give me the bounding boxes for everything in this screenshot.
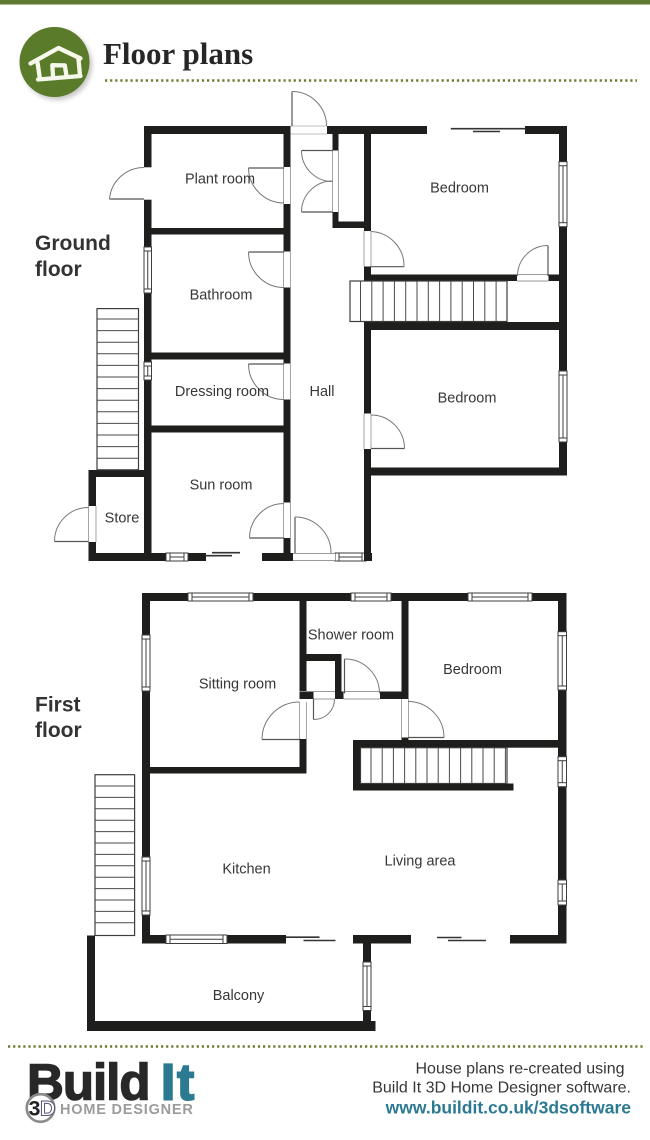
svg-text:Balcony: Balcony	[213, 988, 265, 1004]
svg-text:Build It 3D Home Designer soft: Build It 3D Home Designer software.	[372, 1080, 631, 1097]
svg-text:Plant room: Plant room	[185, 172, 255, 188]
svg-text:Living area: Living area	[385, 854, 457, 870]
svg-text:Shower room: Shower room	[308, 628, 394, 644]
svg-text:www.buildit.co.uk/3dsoftware: www.buildit.co.uk/3dsoftware	[385, 1098, 632, 1118]
svg-text:Floor plans: Floor plans	[103, 36, 253, 71]
svg-text:3: 3	[29, 1097, 41, 1121]
svg-text:Bedroom: Bedroom	[438, 391, 497, 407]
svg-text:Kitchen: Kitchen	[222, 862, 270, 878]
svg-text:Dressing room: Dressing room	[175, 384, 269, 400]
svg-text:floor: floor	[35, 258, 82, 281]
svg-text:Sitting room: Sitting room	[199, 677, 276, 693]
svg-text:HOME DESIGNER: HOME DESIGNER	[60, 1102, 194, 1118]
svg-text:Sun room: Sun room	[190, 478, 253, 494]
svg-text:First: First	[35, 694, 81, 717]
svg-text:Ground: Ground	[35, 232, 111, 255]
svg-text:Bedroom: Bedroom	[443, 662, 502, 678]
svg-text:Store: Store	[105, 511, 140, 527]
svg-text:Hall: Hall	[310, 384, 335, 400]
svg-text:Bedroom: Bedroom	[430, 181, 489, 197]
svg-text:Bathroom: Bathroom	[190, 288, 253, 304]
svg-text:House plans re-created using: House plans re-created using	[415, 1061, 624, 1078]
svg-text:floor: floor	[35, 719, 82, 742]
svg-text:D: D	[40, 1097, 56, 1121]
